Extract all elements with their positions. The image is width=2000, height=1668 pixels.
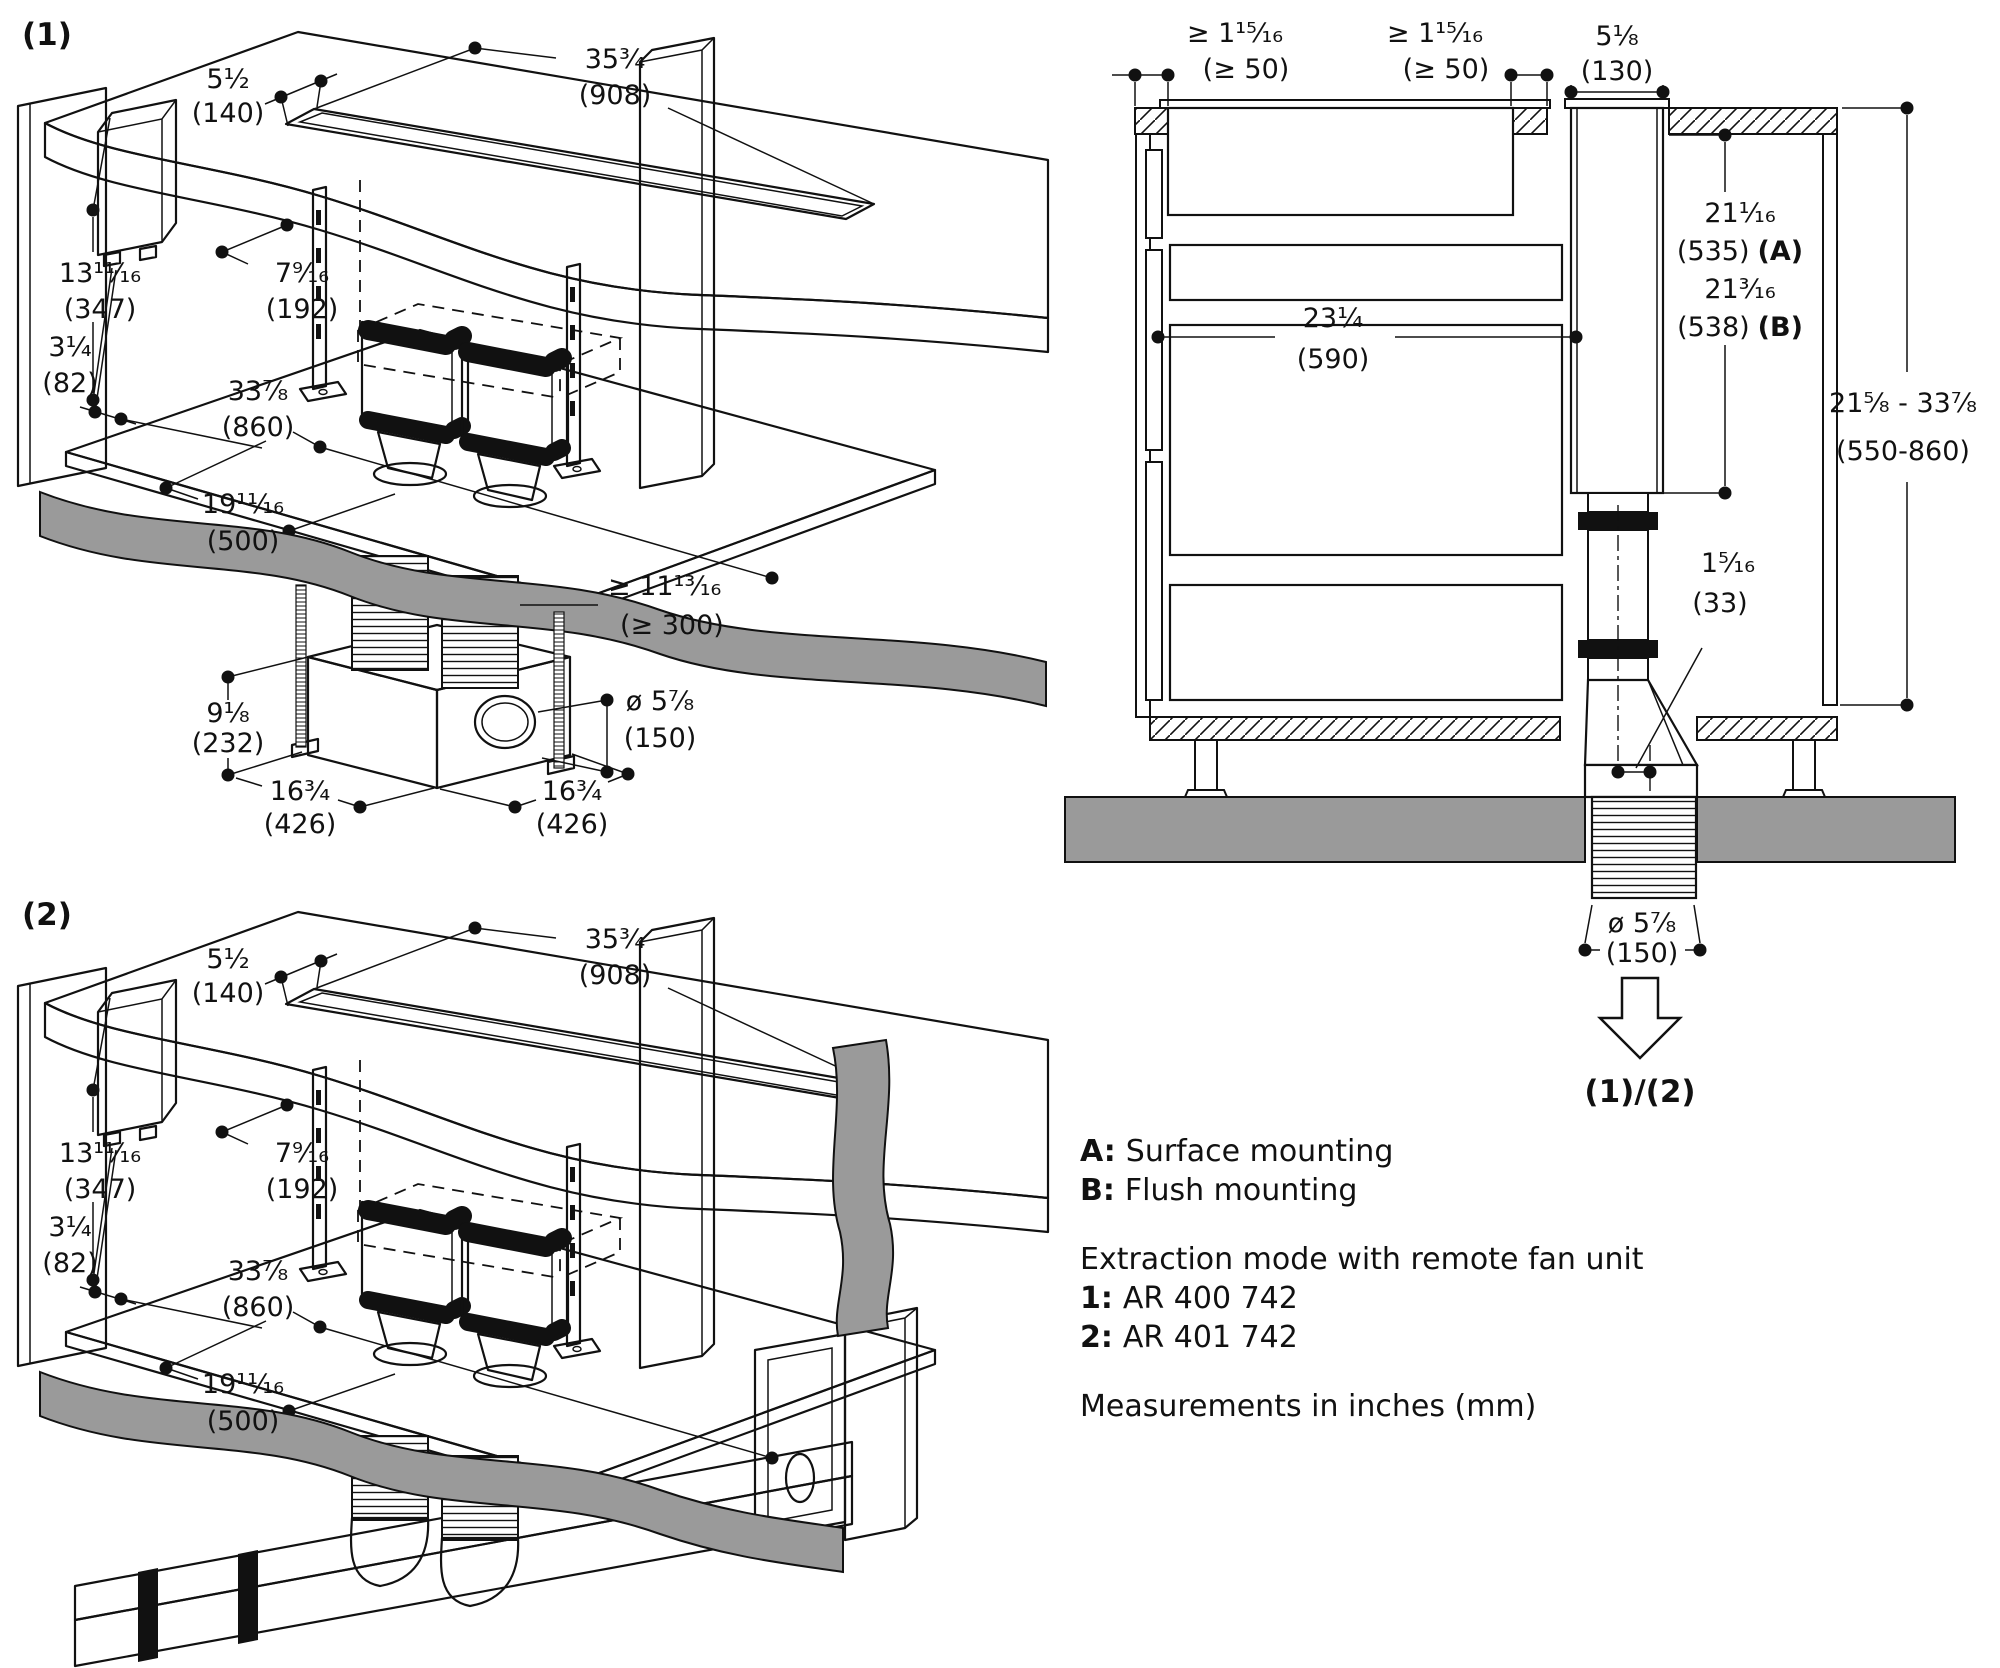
dim-clearance-right: ≥ 1¹⁵⁄₁₆ (≥ 50) bbox=[1387, 18, 1554, 106]
diagram-1-isometric: ≥ 11¹³⁄₁₆ (≥ 300) ø 5⁷⁄₈ (150) 9¹⁄₈ (232… bbox=[0, 0, 1050, 880]
right-side-panel bbox=[1823, 134, 1837, 705]
dim-counter-depth-mm: (140) bbox=[192, 98, 265, 129]
dim-shelf-depth-mm: (500) bbox=[207, 1406, 280, 1437]
downdraft-duct-run bbox=[1571, 108, 1697, 820]
dim-channel-depth-mm: (130) bbox=[1581, 56, 1654, 87]
dim-shelf-width-in: 33⁷⁄₈ bbox=[228, 376, 289, 407]
dim-box-height-mm: (347) bbox=[64, 1174, 137, 1205]
dim-duct-diameter-mm: (150) bbox=[1606, 938, 1679, 969]
duct-straps bbox=[138, 1550, 258, 1662]
dim-shelf-width-mm: (860) bbox=[222, 1292, 295, 1323]
leg-right bbox=[1793, 740, 1815, 790]
fan-box-tabs bbox=[292, 739, 574, 774]
drawer-1 bbox=[1170, 245, 1562, 300]
down-arrow-icon bbox=[1600, 978, 1680, 1058]
legend: A:Surface mounting B:Flush mounting Extr… bbox=[1080, 1132, 1800, 1426]
dim-fan-width-in: 16³⁄₄ bbox=[270, 776, 331, 807]
fan-outlet-port bbox=[475, 696, 535, 748]
threaded-rod-right bbox=[554, 612, 564, 768]
cabinet bbox=[1136, 134, 1837, 797]
legend-note: Measurements in inches (mm) bbox=[1080, 1387, 1800, 1426]
dim-offset-mm: (33) bbox=[1692, 588, 1747, 619]
diagram-2-isometric: (2) 5¹⁄₂ (140) 35³⁄₄ (908) 7⁹⁄₁₆ (192) 1… bbox=[0, 880, 1050, 1668]
cabinet-bottom-right bbox=[1697, 717, 1837, 740]
dim-box-clearance-mm: (82) bbox=[42, 1248, 97, 1279]
dim-fan-depth-in: 16³⁄₄ bbox=[542, 776, 603, 807]
cross-section: ≥ 1¹⁵⁄₁₆ (≥ 50) ≥ 1¹⁵⁄₁₆ (≥ 50) 5¹⁄₈ (13… bbox=[1050, 0, 2000, 1130]
dim-fan-height: 9¹⁄₈ (232) bbox=[192, 657, 308, 782]
legend-model-1-text: AR 400 742 bbox=[1123, 1281, 1298, 1316]
legend-model-1: 1:AR 400 742 bbox=[1080, 1279, 1800, 1318]
legend-model-2: 2:AR 401 742 bbox=[1080, 1318, 1800, 1357]
legend-model-1-prefix: 1: bbox=[1080, 1281, 1113, 1316]
dim-clearance-left-mm: (≥ 50) bbox=[1203, 54, 1290, 85]
figure-1-label: (1) bbox=[22, 17, 72, 53]
legend-b-text: Flush mounting bbox=[1125, 1173, 1358, 1208]
dim-shelf-width-in: 33⁷⁄₈ bbox=[228, 1256, 289, 1287]
dim-height-flush-mm: (538)(B) bbox=[1677, 312, 1803, 343]
legend-b-prefix: B: bbox=[1080, 1173, 1115, 1208]
dim-duct-min-length-in: ≥ 11¹³⁄₁₆ bbox=[608, 571, 721, 602]
wall-band bbox=[833, 1040, 893, 1336]
dim-height-range-in: 21⁵⁄₈ - 33⁷⁄₈ bbox=[1829, 388, 1977, 419]
dim-cabinet-interior-mm: (590) bbox=[1297, 344, 1370, 375]
floor-band bbox=[40, 492, 1046, 706]
dim-cutout-width-in: 35³⁄₄ bbox=[585, 44, 646, 75]
legend-model-2-text: AR 401 742 bbox=[1123, 1320, 1298, 1355]
dim-box-clearance-in: 3¹⁄₄ bbox=[48, 332, 91, 363]
dim-fan-depth-mm: (426) bbox=[536, 809, 609, 840]
dim-fan-width-mm: (426) bbox=[264, 809, 337, 840]
counter-hatch-right bbox=[1669, 108, 1837, 134]
counter-hatch-mid bbox=[1511, 108, 1547, 134]
dim-height-surface-in: 21¹⁄₁₆ bbox=[1704, 198, 1775, 229]
applies-to-label: (1)/(2) bbox=[1584, 1074, 1695, 1110]
counter-hatch-left bbox=[1135, 108, 1168, 134]
duct-collar bbox=[786, 1454, 814, 1502]
dim-height-ab: 21¹⁄₁₆ (535)(A) 21³⁄₁₆ (538)(B) bbox=[1663, 129, 1803, 500]
dim-counter-depth-in: 5¹⁄₂ bbox=[206, 944, 249, 975]
dim-duct-diameter-in: ø 5⁷⁄₈ bbox=[1608, 908, 1676, 939]
dim-clearance-right-in: ≥ 1¹⁵⁄₁₆ bbox=[1387, 18, 1483, 49]
dim-height-surface-mm: (535)(A) bbox=[1677, 236, 1803, 267]
figure-2-label: (2) bbox=[22, 897, 72, 933]
dim-box-depth-mm: (192) bbox=[266, 1174, 339, 1205]
dim-port-diameter-in: ø 5⁷⁄₈ bbox=[626, 686, 694, 717]
dim-duct-min-length-mm: (≥ 300) bbox=[620, 610, 724, 641]
dim-clearance-left: ≥ 1¹⁵⁄₁₆ (≥ 50) bbox=[1112, 18, 1289, 106]
dim-cutout-width-in: 35³⁄₄ bbox=[585, 924, 646, 955]
remote-fan-box bbox=[292, 625, 574, 788]
dim-height-range-mm: (550-860) bbox=[1836, 436, 1970, 467]
floor-left bbox=[1065, 797, 1585, 862]
dim-clearance-right-mm: (≥ 50) bbox=[1403, 54, 1490, 85]
dim-box-depth-in: 7⁹⁄₁₆ bbox=[275, 258, 329, 289]
duct-transition bbox=[1585, 680, 1697, 765]
dim-fan-height-mm: (232) bbox=[192, 728, 265, 759]
dim-shelf-depth-mm: (500) bbox=[207, 526, 280, 557]
outlet-wall bbox=[755, 1308, 917, 1540]
dim-channel-depth: 5¹⁄₈ (130) bbox=[1565, 21, 1670, 99]
page: ≥ 11¹³⁄₁₆ (≥ 300) ø 5⁷⁄₈ (150) 9¹⁄₈ (232… bbox=[0, 0, 2000, 1668]
dim-box-height-in: 13¹¹⁄₁₆ bbox=[59, 1138, 141, 1169]
dim-box-height-in: 13¹¹⁄₁₆ bbox=[59, 258, 141, 289]
threaded-rod-left bbox=[296, 585, 306, 747]
dim-height-range: 21⁵⁄₈ - 33⁷⁄₈ (550-860) bbox=[1829, 102, 1977, 712]
dim-height-flush-in: 21³⁄₁₆ bbox=[1704, 274, 1775, 305]
leg-left bbox=[1195, 740, 1217, 790]
dim-cutout-width-mm: (908) bbox=[579, 960, 652, 991]
dim-fan-width: 16³⁄₄ (426) bbox=[236, 776, 434, 840]
hob-body bbox=[1168, 108, 1513, 215]
dim-clearance-left-in: ≥ 1¹⁵⁄₁₆ bbox=[1187, 18, 1283, 49]
dim-cabinet-interior-in: 23¹⁄₄ bbox=[1303, 303, 1364, 334]
dim-counter-depth-in: 5¹⁄₂ bbox=[206, 64, 249, 95]
dim-shelf-depth-in: 19¹¹⁄₁₆ bbox=[202, 489, 284, 520]
legend-a-prefix: A: bbox=[1080, 1134, 1116, 1169]
dim-box-height-mm: (347) bbox=[64, 294, 137, 325]
dim-cutout-width-mm: (908) bbox=[579, 80, 652, 111]
floor-right bbox=[1697, 797, 1955, 862]
dim-counter-depth-mm: (140) bbox=[192, 978, 265, 1009]
channel-top bbox=[1565, 99, 1669, 108]
duct-elbow-right bbox=[441, 1538, 518, 1606]
legend-model-2-prefix: 2: bbox=[1080, 1320, 1113, 1355]
downdraft-channel bbox=[1571, 108, 1663, 493]
legend-line-a: A:Surface mounting bbox=[1080, 1132, 1800, 1171]
legend-heading: Extraction mode with remote fan unit bbox=[1080, 1240, 1800, 1279]
dim-offset-in: 1⁵⁄₁₆ bbox=[1701, 548, 1755, 579]
dim-port-diameter-mm: (150) bbox=[624, 723, 697, 754]
drawer-3 bbox=[1170, 585, 1562, 700]
duct-spigot bbox=[1585, 765, 1697, 797]
cabinet-bottom-left bbox=[1150, 717, 1560, 740]
floor-flex-duct bbox=[1592, 797, 1696, 898]
legend-a-text: Surface mounting bbox=[1126, 1134, 1394, 1169]
dim-shelf-width-mm: (860) bbox=[222, 412, 295, 443]
dim-shelf-depth-in: 19¹¹⁄₁₆ bbox=[202, 1369, 284, 1400]
dim-channel-depth-in: 5¹⁄₈ bbox=[1595, 21, 1638, 52]
dim-fan-height-in: 9¹⁄₈ bbox=[206, 698, 249, 729]
dim-box-depth-mm: (192) bbox=[266, 294, 339, 325]
dim-box-depth-in: 7⁹⁄₁₆ bbox=[275, 1138, 329, 1169]
hob-glass bbox=[1160, 100, 1550, 108]
dim-box-clearance-mm: (82) bbox=[42, 368, 97, 399]
legend-line-b: B:Flush mounting bbox=[1080, 1171, 1800, 1210]
dim-duct-diameter: ø 5⁷⁄₈ (150) bbox=[1579, 905, 1707, 969]
dim-box-clearance-in: 3¹⁄₄ bbox=[48, 1212, 91, 1243]
